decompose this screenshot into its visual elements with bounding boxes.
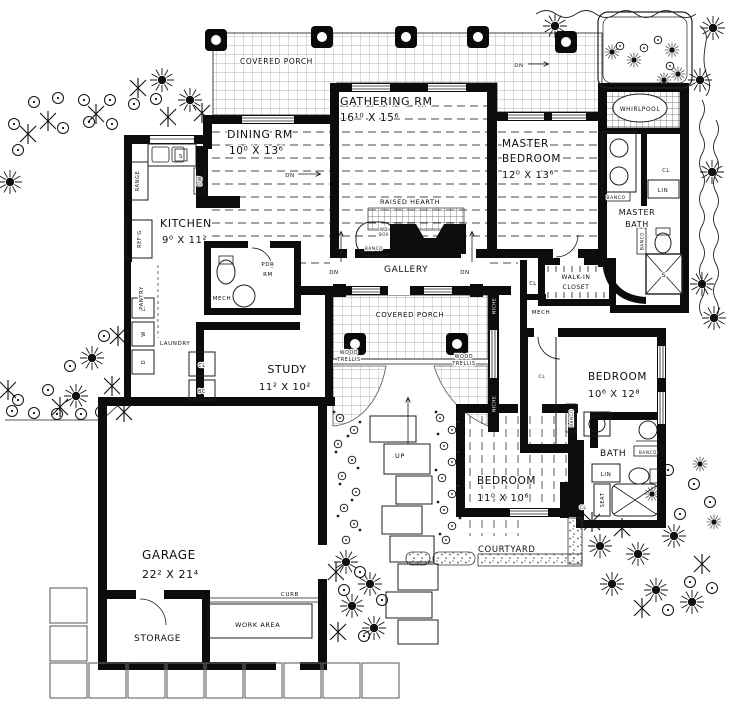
study-closet-label: CL: [198, 363, 205, 369]
shrub: [690, 272, 714, 296]
planting-right-middle: [645, 457, 722, 530]
wood-trellis-right-label-2: TRELLIS: [451, 361, 475, 367]
master-bedroom-dims: 12⁰ X 13⁶: [502, 170, 554, 181]
bedroom-bottom-label: BEDROOM: [477, 475, 536, 487]
porch-column: [446, 333, 468, 355]
porch-column: [395, 26, 417, 48]
covered-porch-top-label: COVERED PORCH: [240, 57, 313, 66]
down-label: DN: [460, 270, 470, 276]
water-heater: [233, 285, 255, 307]
garden-bed: [598, 12, 692, 88]
master-bedroom-label-2: BEDROOM: [502, 153, 561, 165]
garage-dims: 22² X 21⁴: [142, 568, 199, 581]
sink-label: S: [179, 154, 183, 160]
wood-trellis-left-label-1: WOOD: [340, 350, 358, 356]
hall-closet-label: CL: [529, 281, 536, 287]
powder-room-label-2: RM: [263, 272, 273, 278]
bath-closet-label: CL: [580, 505, 587, 511]
bedroom-bottom-dims: 11⁰ X 10⁶: [477, 493, 529, 504]
master-banco-label: BANCO: [606, 195, 625, 201]
work-area-label: WORK AREA: [235, 621, 280, 629]
windows: [136, 84, 665, 670]
floor-plan-drawing: COVERED PORCH GATHERING RM 16¹⁰ X 15⁶ DI…: [0, 0, 736, 727]
study-dims: 11² X 10²: [259, 382, 311, 393]
bedroom-right-closet-label: CL: [539, 374, 546, 380]
dryer-label: D: [141, 360, 147, 364]
refrigerator-label: REF'G: [137, 230, 143, 248]
down-label: DN: [329, 270, 339, 276]
shrub: [702, 306, 726, 330]
covered-porch-mid-label: COVERED PORCH: [376, 311, 445, 319]
whirlpool-label: WHIRLPOOL: [620, 107, 660, 113]
laundry-label: LAUNDRY: [160, 341, 190, 347]
master-bath-label-1: MASTER: [619, 208, 656, 217]
shrub: [701, 16, 725, 40]
storage-label: STORAGE: [134, 634, 181, 644]
wood-trellis-right-label-1: WOOD: [455, 354, 473, 360]
dining-room-label: DINING RM: [227, 128, 293, 141]
planting-top-left: [0, 68, 210, 194]
walk-in-rods: [548, 266, 604, 298]
garage-label: GARAGE: [142, 548, 196, 562]
master-banco-vertical-label: BANCO: [640, 232, 645, 250]
washer-label: W: [141, 331, 147, 337]
hall-mech-label: MECH: [532, 310, 551, 316]
curb-label: CURB: [281, 592, 299, 598]
porch-column: [205, 29, 227, 51]
dining-room-dims: 10⁰ X 13⁶: [229, 145, 283, 157]
bath-banco-label: BANCO: [639, 450, 657, 455]
kitchen-peninsula: [196, 196, 240, 208]
gathering-room-label: GATHERING RM: [340, 95, 433, 108]
courtyard-label: COURTYARD: [478, 545, 536, 555]
pantry-label: PANTRY: [139, 286, 145, 310]
planting-path-left: [333, 411, 362, 544]
walk-in-closet-label-1: WALK-IN: [562, 274, 591, 281]
bath-linen-label: LIN: [601, 472, 612, 478]
shrub: [700, 160, 724, 184]
gathering-room-dims: 16¹⁰ X 15⁶: [340, 112, 399, 124]
master-linen-label: LIN: [658, 188, 669, 194]
niche-label: NICHE: [492, 396, 498, 412]
kitchen-label: KITCHEN: [160, 217, 212, 230]
bedroom-right-banco-label: BANCO: [569, 409, 574, 426]
powder-room-toilet: [217, 256, 235, 284]
hearth-banco-label: BANCO: [365, 246, 383, 251]
bath-label: BATH: [600, 449, 626, 459]
porch-column: [311, 26, 333, 48]
wood-box-label-2: BOX: [379, 232, 389, 237]
bath-seat-label: SEAT: [600, 492, 606, 507]
shower-label: S: [662, 271, 667, 279]
porch-column: [467, 26, 489, 48]
kitchen-dims: 9⁰ X 11²: [162, 235, 207, 246]
wood-trellis-left-label-2: TRELLIS: [336, 357, 360, 363]
bedroom-right-label: BEDROOM: [588, 371, 647, 383]
master-toilet: [655, 228, 671, 253]
planting-left-middle: [0, 326, 132, 422]
bath-toilet: [629, 468, 658, 484]
kitchen-sink: [148, 144, 196, 166]
gallery-label: GALLERY: [384, 265, 428, 275]
dishwasher-label: DW: [198, 176, 204, 186]
bath-lav: [636, 421, 657, 441]
stepping-path: [370, 416, 438, 644]
down-label: DN: [514, 63, 524, 69]
master-bath-label-2: BATH: [625, 220, 649, 229]
down-label: DN: [285, 173, 295, 179]
master-vanity: [602, 132, 636, 201]
master-bedroom-label-1: MASTER: [502, 138, 549, 150]
bath-tub: [612, 484, 658, 516]
study-label: STUDY: [267, 363, 306, 376]
porch-column: [555, 31, 577, 53]
raised-hearth-label: RAISED HEARTH: [380, 198, 440, 206]
up-label: UP: [395, 452, 405, 460]
bedroom-right-dims: 10⁶ X 12⁸: [588, 389, 640, 400]
walk-in-closet-label-2: CLOSET: [563, 284, 590, 291]
master-closet-label: CL: [662, 168, 669, 174]
powder-room-label-1: PDR: [261, 262, 274, 268]
range-label: RANGE: [135, 171, 141, 191]
study-bookcase-label: BC: [198, 389, 206, 395]
mech-label: MECH: [213, 296, 232, 302]
floor-plan-canvas: COVERED PORCH GATHERING RM 16¹⁰ X 15⁶ DI…: [0, 0, 736, 727]
niche-label: NICHE: [492, 298, 498, 314]
planting-below-path: [328, 550, 388, 642]
